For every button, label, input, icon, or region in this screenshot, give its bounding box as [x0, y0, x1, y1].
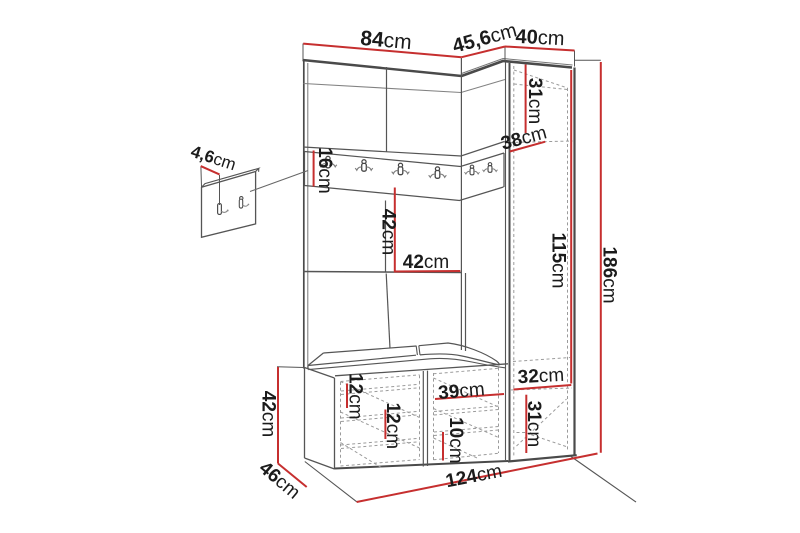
svg-text:39cm: 39cm	[437, 379, 485, 404]
svg-text:124cm: 124cm	[444, 461, 504, 492]
svg-text:115cm: 115cm	[547, 233, 568, 289]
svg-text:31cm: 31cm	[524, 78, 545, 124]
svg-text:4,6cm: 4,6cm	[188, 142, 238, 174]
svg-text:40cm: 40cm	[515, 26, 565, 51]
svg-text:12cm: 12cm	[344, 373, 365, 419]
svg-text:42cm: 42cm	[257, 391, 278, 437]
svg-text:186cm: 186cm	[598, 246, 619, 303]
svg-text:12cm: 12cm	[382, 403, 403, 449]
svg-text:42cm: 42cm	[403, 252, 449, 273]
svg-text:32cm: 32cm	[517, 365, 565, 388]
svg-text:10cm: 10cm	[445, 417, 466, 463]
svg-text:31cm: 31cm	[523, 401, 544, 447]
svg-text:42cm: 42cm	[377, 209, 398, 255]
svg-text:38cm: 38cm	[499, 122, 549, 154]
svg-text:84cm: 84cm	[359, 26, 412, 53]
svg-text:16cm: 16cm	[314, 147, 335, 193]
